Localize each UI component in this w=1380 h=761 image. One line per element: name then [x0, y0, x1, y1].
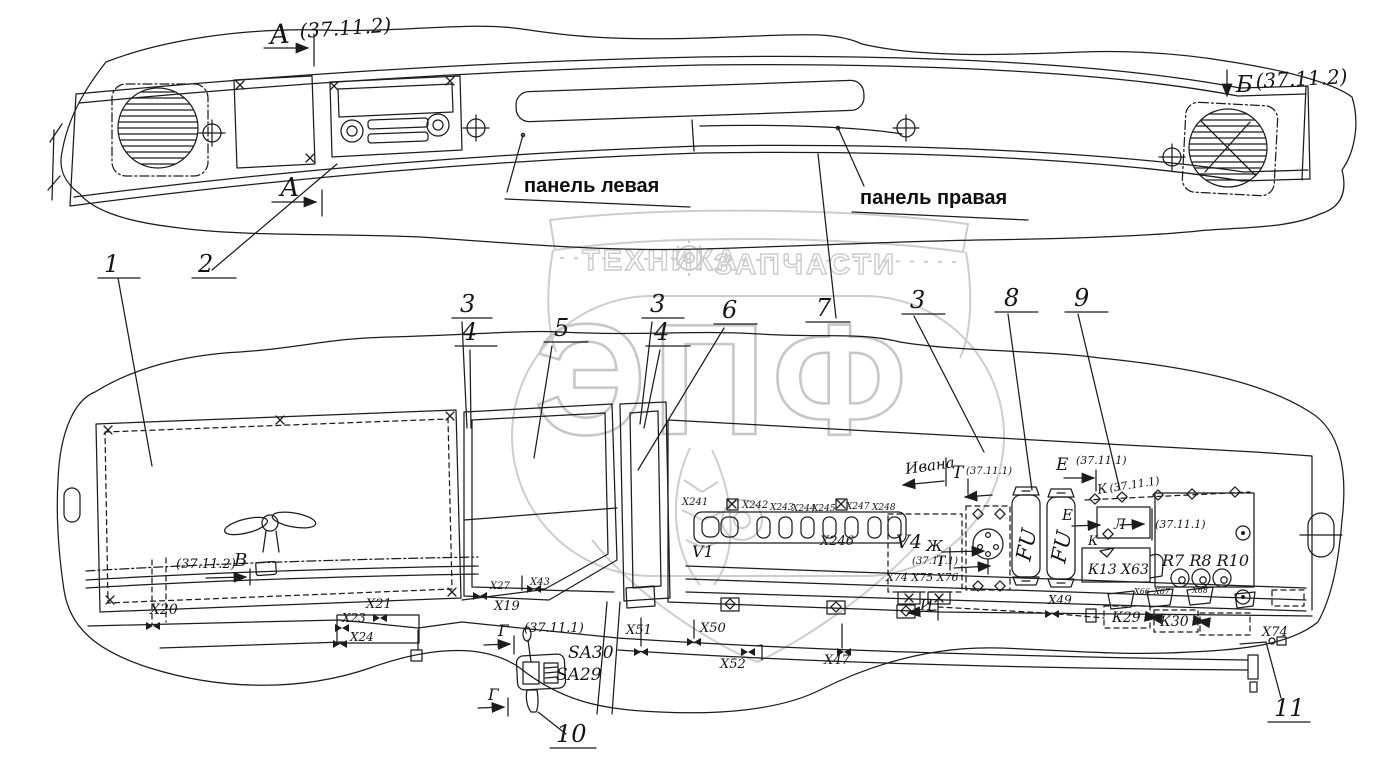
callout-6: 6: [722, 296, 737, 324]
section-mark-e-mid: Е: [1061, 506, 1073, 524]
connector-label-x246: Х246: [819, 534, 854, 549]
relay-label-k30: К30: [1159, 614, 1189, 630]
connector-label-x243: Х243: [769, 503, 794, 513]
catalog-drawing-page: ТЕХНИКА ЗАПЧАСТИ ЭПФ: [0, 0, 1380, 761]
connector-label-x49: Х49: [1047, 593, 1072, 607]
wheat-icon: [676, 448, 762, 585]
section-mark-a-top: А: [266, 19, 291, 51]
radio-unit: [330, 76, 462, 157]
connector-label-x74-75-76: Х74 Х75 Х76: [885, 571, 958, 584]
callout-10: 10: [556, 720, 587, 748]
connector-label-x74: Х74: [1261, 625, 1288, 640]
section-ref-b: (37.11.2): [1255, 64, 1348, 93]
section-mark-a-bottom: А: [278, 173, 300, 203]
section-ref-l: (37.11.1): [1155, 518, 1206, 531]
callout-5: 5: [554, 314, 569, 342]
connector-label-x68: Х68: [1191, 586, 1208, 595]
switch-label-sa30: SA30: [568, 643, 614, 663]
callout-8: 8: [1004, 284, 1019, 312]
panel-opening: [234, 76, 315, 168]
switch-label-sa29: SA29: [556, 665, 602, 685]
dashboard-assembly-diagram: ТЕХНИКА ЗАПЧАСТИ ЭПФ: [0, 0, 1380, 761]
component-label-v1: V1: [692, 542, 714, 561]
relay-label-k13-x63: К13 Х63: [1087, 562, 1149, 578]
callout-3a: 3: [460, 290, 475, 318]
section-mark-t-top: Т: [952, 463, 965, 483]
right-speaker-grille: [1182, 102, 1279, 197]
fuse-label-fu2: FU: [1046, 527, 1077, 566]
connector-label-x248: Х248: [871, 503, 896, 513]
connector-label-x47: Х47: [823, 653, 851, 668]
connector-label-x23: Х23: [341, 611, 366, 625]
round-connector: [966, 506, 1010, 591]
section-ref-v: (37.11.2): [176, 557, 236, 572]
section-mark-v: В: [233, 550, 247, 571]
connector-label-x50: Х50: [699, 621, 726, 636]
callout-1: 1: [104, 250, 119, 278]
section-ref-t: (37.11.1): [966, 466, 1012, 477]
connector-label-x43: Х43: [529, 577, 550, 588]
connector-label-x21: Х21: [365, 597, 392, 612]
connector-label-x51: Х51: [625, 623, 652, 638]
connector-label-x245: Х245: [811, 504, 836, 514]
section-mark-b: Б: [1235, 72, 1253, 98]
section-mark-l: Л: [1113, 517, 1126, 533]
connector-label-x20: Х20: [149, 602, 178, 618]
callout-7: 7: [816, 294, 832, 322]
connector-label-x241: Х241: [681, 497, 708, 508]
resistor-labels-r7-r8-r10: R7 R8 R10: [1161, 551, 1249, 570]
connector-label-x19: Х19: [493, 599, 520, 614]
relay-label-k29: К29: [1111, 610, 1141, 626]
callout-9: 9: [1074, 284, 1089, 312]
connector-label-x66: Х66: [1133, 587, 1150, 596]
left-speaker-grille: [112, 84, 208, 176]
section-ref-a: (37.11.2): [299, 13, 392, 43]
connector-label-x52: Х52: [719, 657, 746, 672]
fuse-label-fu1: FU: [1011, 525, 1042, 564]
section-mark-zh: Ж: [925, 537, 944, 555]
connector-label-x67: Х67: [1153, 587, 1171, 596]
left-panel-back: [96, 410, 461, 612]
section-mark-e-top: Е: [1055, 455, 1069, 475]
callout-3b: 3: [650, 290, 665, 318]
connector-label-x27: Х27: [489, 581, 510, 592]
section-ref-e: (37.11.1): [1076, 454, 1127, 467]
section-ref-g: (37.11.1): [524, 621, 584, 636]
component-label-v4: V4: [896, 531, 922, 553]
callout-2: 2: [197, 250, 213, 278]
callout-3c: 3: [910, 286, 925, 314]
callout-4a: 4: [461, 318, 477, 346]
panel-left-label: панель левая: [524, 175, 659, 197]
connector-label-x242: Х242: [741, 500, 768, 511]
panel-right-label: панель правая: [860, 187, 1007, 209]
section-mark-k-top: К: [1095, 481, 1109, 498]
section-mark-k-mid: К: [1087, 534, 1099, 549]
connector-label-x247: Х247: [845, 502, 870, 512]
section-mark-g-bottom: Г: [487, 685, 500, 704]
section-mark-i: И: [919, 596, 934, 614]
callout-4b: 4: [653, 318, 669, 346]
watermark-word-right: ЗАПЧАСТИ: [714, 249, 897, 281]
section-mark-g-top: Г: [497, 621, 510, 640]
callout-11: 11: [1274, 694, 1305, 722]
connector-label-x24: Х24: [349, 630, 374, 644]
section-ref-k: (37.11.1): [1108, 474, 1160, 495]
